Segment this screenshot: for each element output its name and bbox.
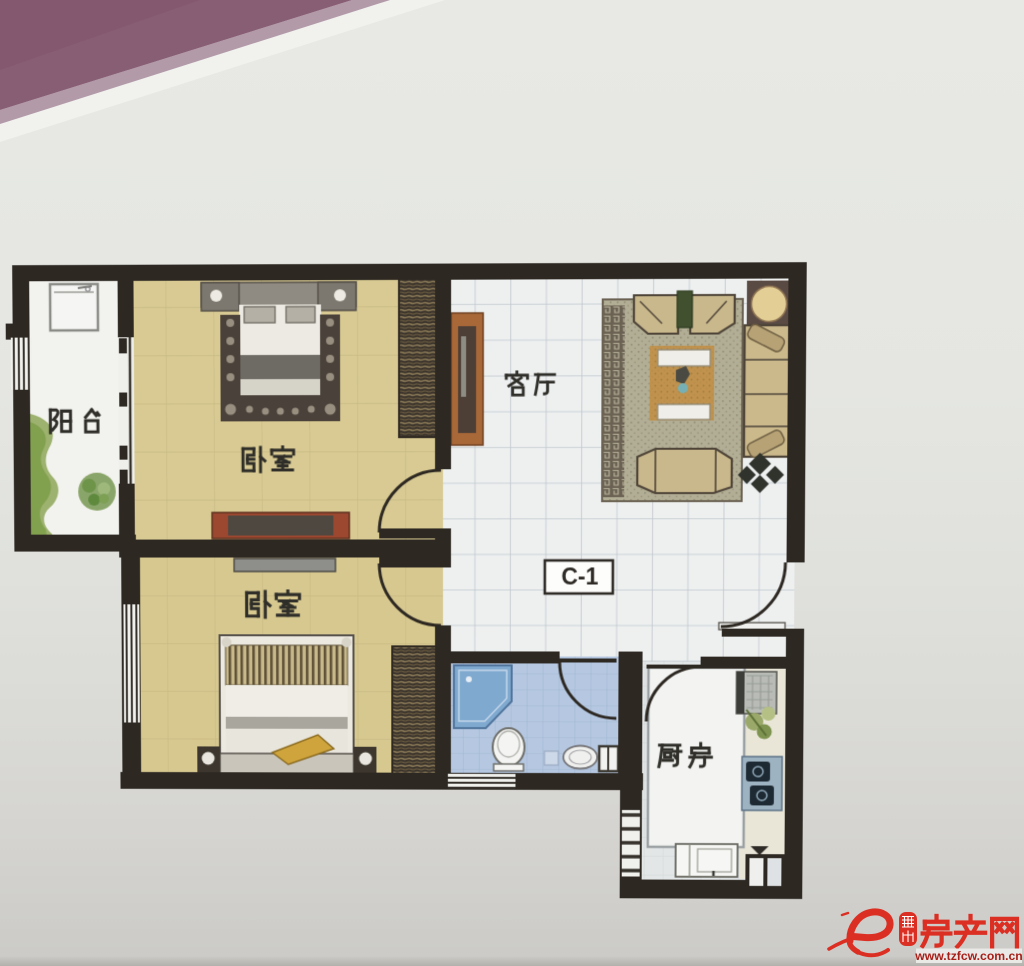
svg-text:www.tzfcw.com.cn: www.tzfcw.com.cn bbox=[914, 949, 1022, 963]
